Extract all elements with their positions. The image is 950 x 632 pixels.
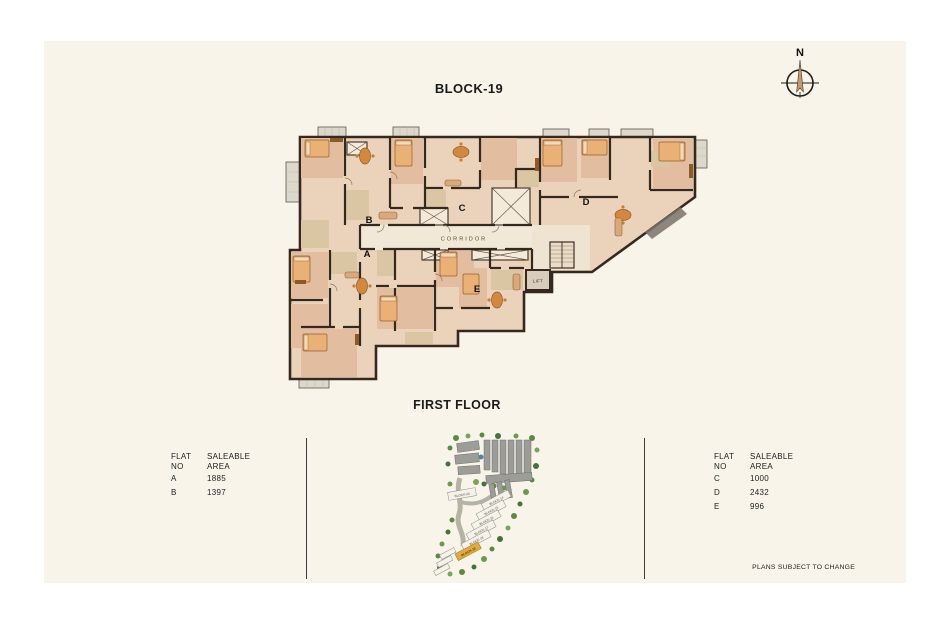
table-row: E 996 xyxy=(714,502,793,512)
area-cell: 1397 xyxy=(207,488,250,498)
flat-label-b: B xyxy=(366,215,373,226)
area-cell: 2432 xyxy=(750,488,793,498)
flat-no-cell: A xyxy=(171,474,207,484)
key-plan-pool xyxy=(479,455,484,460)
page-title: BLOCK-19 xyxy=(369,81,569,96)
compass-north-label: N xyxy=(778,48,822,59)
brochure-page: { "header": { "title": "BLOCK-19", "floo… xyxy=(0,0,950,632)
right-divider-line xyxy=(644,438,645,579)
col-no-label: NO xyxy=(714,462,727,471)
flat-no-cell: D xyxy=(714,488,750,498)
col-area-label: AREA xyxy=(750,462,773,471)
key-plan: BLOCK-20 BLOCK-14 BLOCK-15 BLOCK-16 BLOC… xyxy=(424,432,542,580)
lift-label: LIFT xyxy=(533,279,543,284)
floor-plan: LIFT xyxy=(285,122,715,392)
area-cell: 1885 xyxy=(207,474,250,484)
col-flat-label: FLAT xyxy=(714,452,734,461)
col-no-label: NO xyxy=(171,462,184,471)
flat-label-c: C xyxy=(459,203,466,214)
flat-no-cell: B xyxy=(171,488,207,498)
col-saleable-label: SALEABLE xyxy=(207,452,250,461)
col-flat-label: FLAT xyxy=(171,452,191,461)
area-cell: 1000 xyxy=(750,474,793,484)
table-row: C 1000 xyxy=(714,474,793,484)
area-table-right-header: FLAT NO SALEABLE AREA xyxy=(714,452,793,471)
left-divider-line xyxy=(306,438,307,579)
col-saleable-label: SALEABLE xyxy=(750,452,793,461)
flat-no-cell: C xyxy=(714,474,750,484)
flat-no-cell: E xyxy=(714,502,750,512)
flat-label-a: A xyxy=(364,249,371,260)
area-table-left-header: FLAT NO SALEABLE AREA xyxy=(171,452,250,471)
flat-label-e: E xyxy=(474,284,480,295)
table-row: A 1885 xyxy=(171,474,250,484)
table-row: D 2432 xyxy=(714,488,793,498)
area-table-right: FLAT NO SALEABLE AREA C 1000 D 2432 E 99… xyxy=(714,452,793,516)
area-table-left: FLAT NO SALEABLE AREA A 1885 B 1397 xyxy=(171,452,250,502)
staircase xyxy=(550,242,574,268)
floor-title: FIRST FLOOR xyxy=(357,398,557,412)
compass-rose-icon xyxy=(778,59,822,107)
flat-label-d: D xyxy=(583,197,590,208)
table-row: B 1397 xyxy=(171,488,250,498)
col-area-label: AREA xyxy=(207,462,230,471)
key-plan-block-row: BLOCK-20 BLOCK-14 BLOCK-15 BLOCK-16 BLOC… xyxy=(434,488,512,576)
area-cell: 996 xyxy=(750,502,793,512)
disclaimer-note: PLANS SUBJECT TO CHANGE xyxy=(690,564,855,571)
compass: N xyxy=(778,48,822,108)
corridor-label: CORRIDOR xyxy=(441,237,487,243)
lift-shaft: LIFT xyxy=(526,270,550,290)
